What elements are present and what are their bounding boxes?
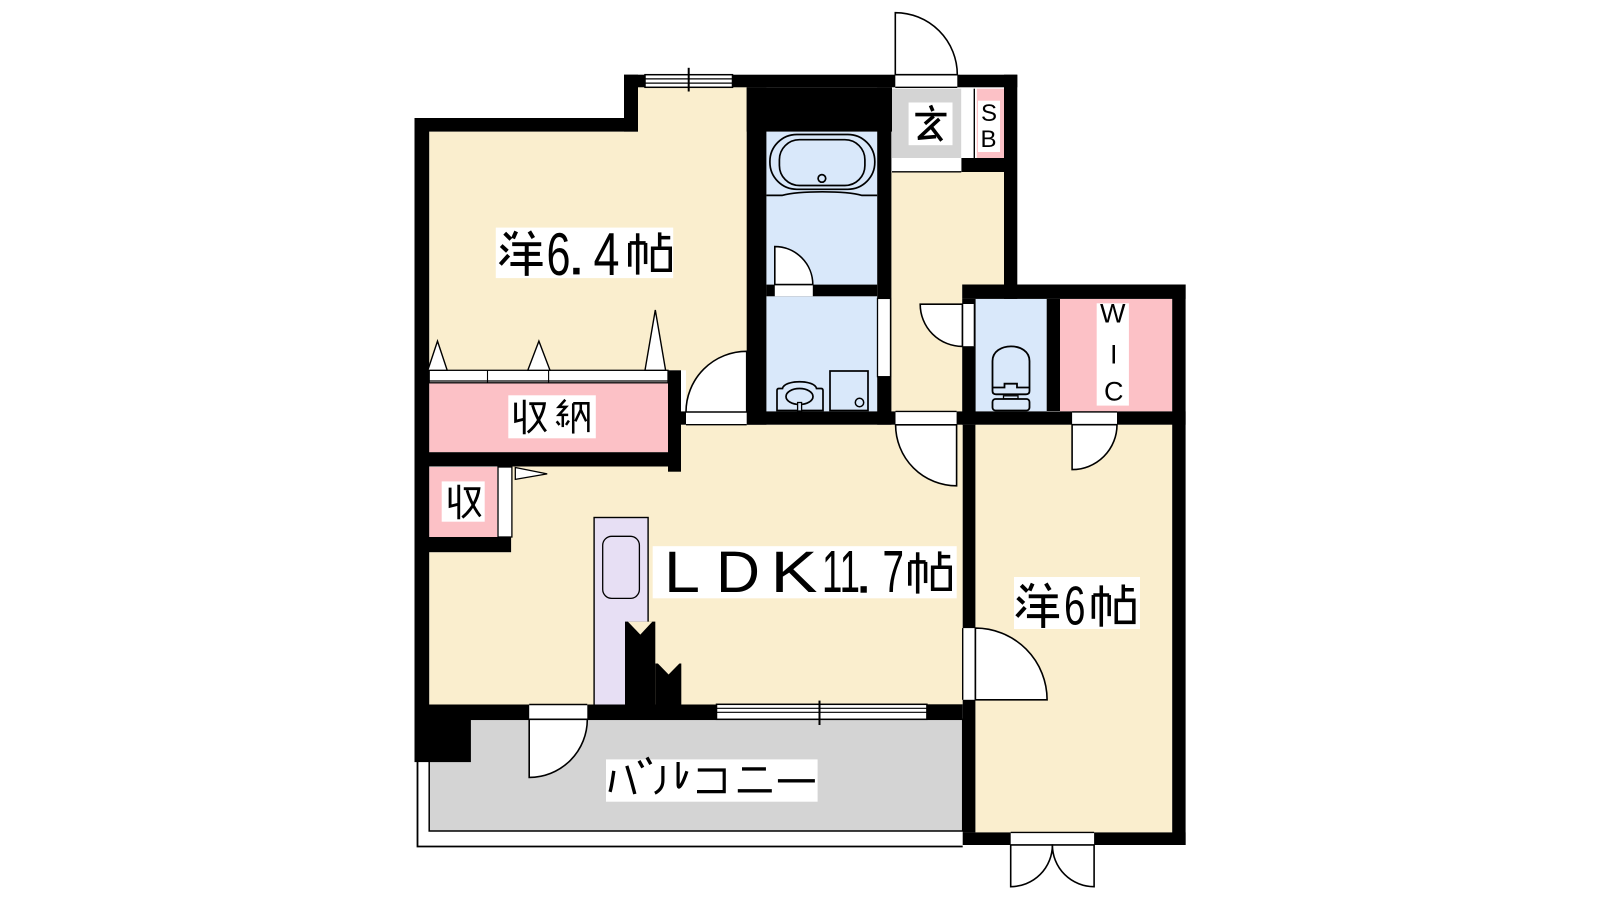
svg-text:4: 4 [594, 221, 620, 288]
svg-text:11: 11 [822, 539, 860, 605]
svg-text:L: L [664, 540, 700, 605]
svg-text:6: 6 [1064, 574, 1086, 636]
svg-text:7: 7 [883, 539, 905, 605]
svg-text:B: B [981, 126, 997, 153]
svg-text:C: C [1104, 377, 1124, 407]
svg-text:6: 6 [547, 221, 571, 288]
svg-text:I: I [1110, 340, 1118, 370]
svg-text:D: D [716, 540, 760, 605]
svg-text:W: W [1100, 299, 1126, 329]
svg-text:K: K [771, 540, 818, 605]
svg-text:S: S [981, 100, 997, 127]
